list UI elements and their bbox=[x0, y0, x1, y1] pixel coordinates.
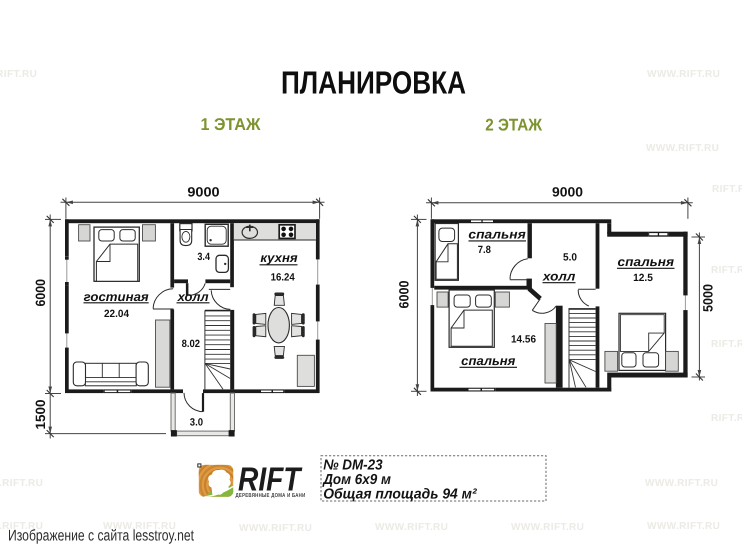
svg-text:ПЛАНИРОВКА: ПЛАНИРОВКА bbox=[281, 65, 466, 101]
svg-text:5.0: 5.0 bbox=[563, 252, 577, 264]
svg-text:1 ЭТАЖ: 1 ЭТАЖ bbox=[201, 115, 262, 134]
svg-text:№ DM-23: № DM-23 bbox=[323, 457, 382, 473]
svg-text:3.4: 3.4 bbox=[197, 251, 210, 263]
svg-text:WWW.RIFT.RU: WWW.RIFT.RU bbox=[645, 478, 718, 489]
svg-text:RIFT.RU: RIFT.RU bbox=[711, 339, 742, 350]
svg-text:RIFT.RU: RIFT.RU bbox=[711, 413, 742, 424]
svg-text:ДЕРЕВЯННЫЕ ДОМА И БАНИ: ДЕРЕВЯННЫЕ ДОМА И БАНИ bbox=[236, 493, 306, 499]
svg-text:гостиная: гостиная bbox=[84, 290, 150, 304]
svg-text:9000: 9000 bbox=[552, 185, 583, 200]
svg-text:5000: 5000 bbox=[700, 284, 715, 312]
svg-text:WWW.RIFT.RU: WWW.RIFT.RU bbox=[0, 478, 43, 489]
svg-text:1500: 1500 bbox=[33, 400, 48, 430]
svg-text:WWW.RIFT.RU: WWW.RIFT.RU bbox=[647, 521, 720, 532]
svg-text:RIFT.RU: RIFT.RU bbox=[711, 265, 742, 276]
svg-text:22.04: 22.04 bbox=[104, 308, 129, 320]
svg-text:спальня: спальня bbox=[461, 354, 516, 368]
svg-text:14.56: 14.56 bbox=[511, 333, 536, 345]
svg-text:кухня: кухня bbox=[260, 251, 298, 265]
svg-text:16.24: 16.24 bbox=[271, 272, 295, 284]
svg-text:RIFT.RU: RIFT.RU bbox=[712, 184, 742, 195]
svg-text:9000: 9000 bbox=[187, 185, 219, 200]
svg-text:WWW.RIFT.RU: WWW.RIFT.RU bbox=[0, 69, 37, 80]
svg-text:12.5: 12.5 bbox=[633, 272, 653, 284]
svg-text:холл: холл bbox=[542, 270, 576, 284]
svg-text:Общая площадь 94 м²: Общая площадь 94 м² bbox=[323, 487, 478, 503]
svg-text:6000: 6000 bbox=[33, 279, 48, 307]
svg-text:8.02: 8.02 bbox=[182, 338, 201, 350]
svg-text:WWW.RIFT.RU: WWW.RIFT.RU bbox=[375, 522, 448, 533]
svg-text:Изображение с сайта lesstroy.n: Изображение с сайта lesstroy.net bbox=[8, 528, 195, 545]
svg-text:WWW.RIFT.RU: WWW.RIFT.RU bbox=[511, 522, 584, 533]
svg-text:спальня: спальня bbox=[468, 228, 526, 242]
svg-text:спальня: спальня bbox=[618, 255, 675, 269]
svg-text:WWW.RIFT.RU: WWW.RIFT.RU bbox=[239, 523, 312, 534]
svg-text:3.0: 3.0 bbox=[190, 417, 203, 429]
svg-text:6000: 6000 bbox=[397, 281, 412, 309]
svg-text:холл: холл bbox=[177, 290, 209, 304]
svg-text:7.8: 7.8 bbox=[478, 244, 491, 256]
svg-text:WWW.RIFT.RU: WWW.RIFT.RU bbox=[646, 143, 719, 154]
svg-text:2 ЭТАЖ: 2 ЭТАЖ bbox=[485, 116, 542, 135]
svg-text:WWW.RIFT.RU: WWW.RIFT.RU bbox=[647, 69, 720, 80]
